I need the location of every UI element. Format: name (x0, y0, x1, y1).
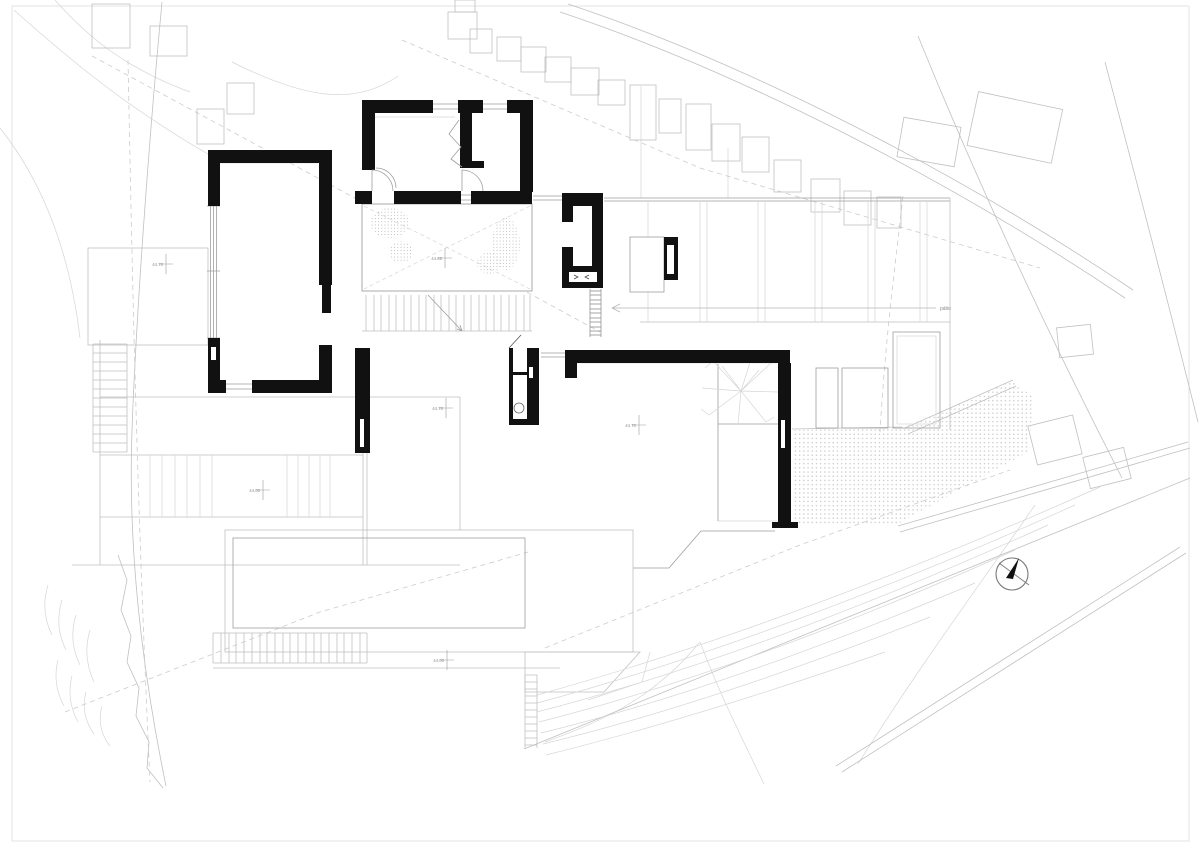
contour-lines (0, 0, 1035, 788)
door-leaf (509, 335, 521, 348)
spot-level: 44.00 (433, 658, 444, 663)
stairs-west (93, 344, 127, 452)
terrace-upper-left (88, 248, 208, 345)
stair-ladder (590, 289, 601, 337)
architectural-floor-plan: 44.70 44.65 44.70 44.70 44.00 44.00 páti… (0, 0, 1200, 848)
walls-black (208, 100, 798, 528)
spot-level-crosses (159, 248, 646, 670)
lower-rooms-right (604, 198, 950, 430)
spot-level: 44.70 (152, 262, 163, 267)
paving-stipple (792, 381, 1034, 524)
patio-label: pátio (612, 304, 951, 312)
drawing-sheet: 44.70 44.65 44.70 44.70 44.00 44.00 páti… (0, 0, 1200, 848)
spot-level: 44.00 (249, 488, 260, 493)
patio-leader-line (612, 304, 936, 312)
fireplace (630, 237, 664, 292)
patio-text: pátio (940, 306, 951, 312)
spot-level: 44.70 (625, 423, 636, 428)
slope-terraces (525, 487, 1100, 755)
site-context (0, 0, 1198, 788)
door-arcs (372, 168, 483, 191)
north-arrow-icon (996, 558, 1029, 590)
lower-court (72, 340, 460, 565)
pool (213, 530, 633, 668)
courtyard-steps (362, 295, 532, 331)
spot-level: 44.70 (432, 406, 443, 411)
terrace-east (577, 363, 778, 521)
fireplace-slit (667, 245, 674, 274)
spot-level: 44.65 (431, 256, 442, 261)
courtyard (362, 204, 532, 331)
terrace-boundary (633, 531, 775, 568)
wc-fixture (514, 403, 524, 413)
